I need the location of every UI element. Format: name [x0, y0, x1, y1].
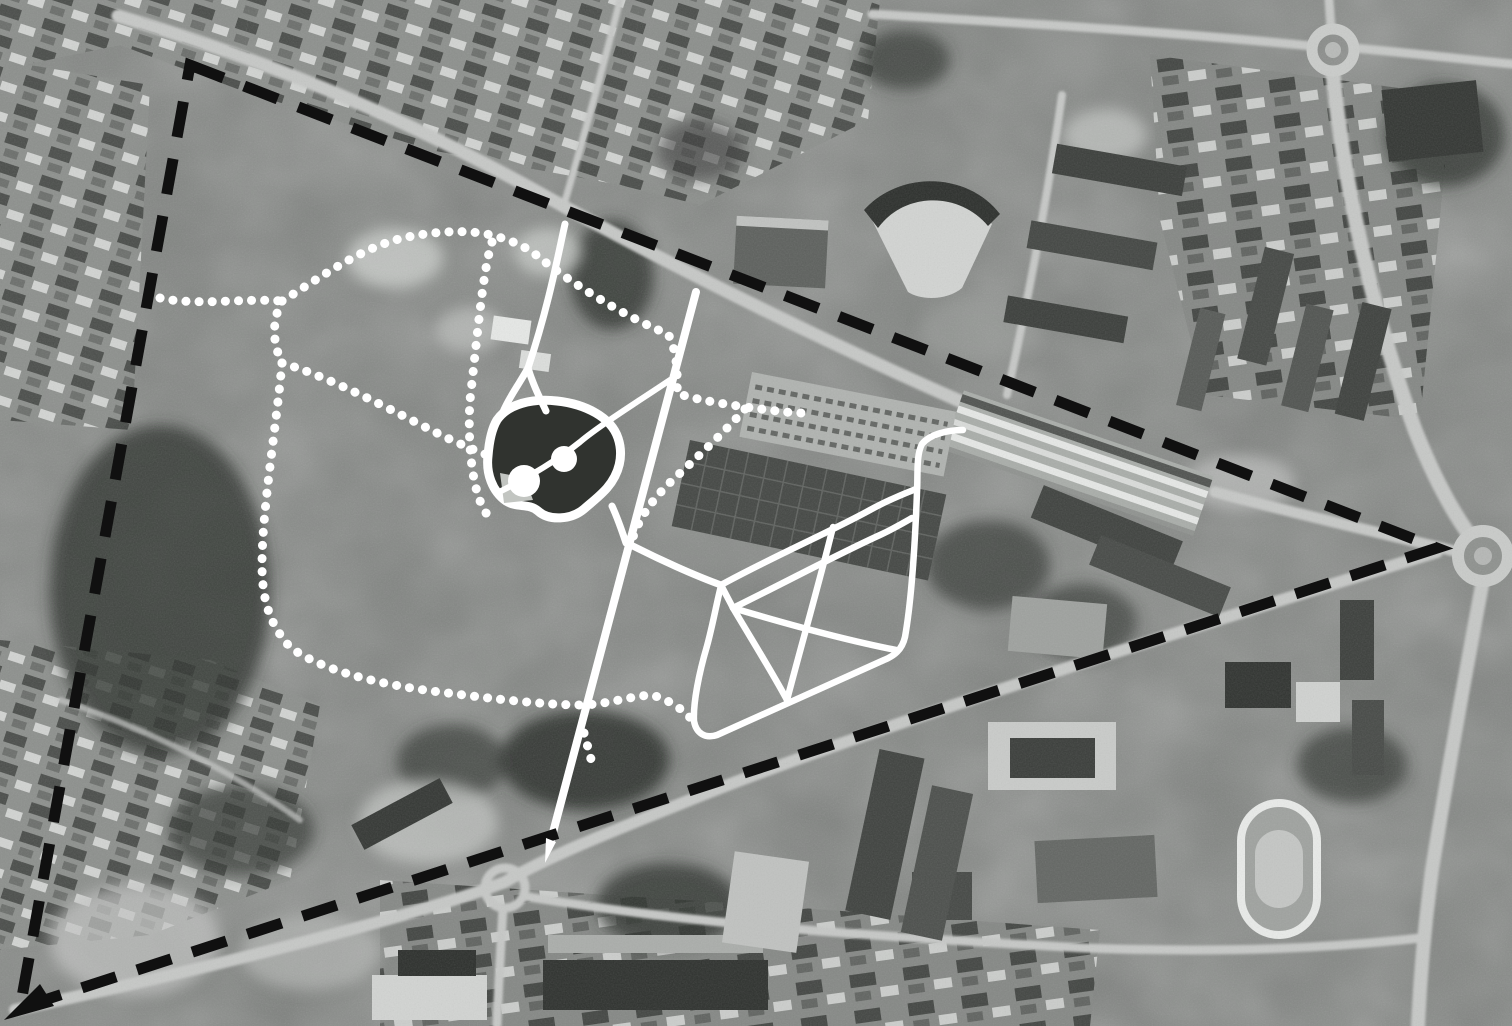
- pond-island-small: [551, 446, 577, 472]
- pond-island-large: [508, 465, 540, 497]
- aerial-site-plan: [0, 0, 1512, 1026]
- aerial-photo-figure: [0, 0, 1512, 1026]
- aerial-photo-background: [0, 0, 1512, 1026]
